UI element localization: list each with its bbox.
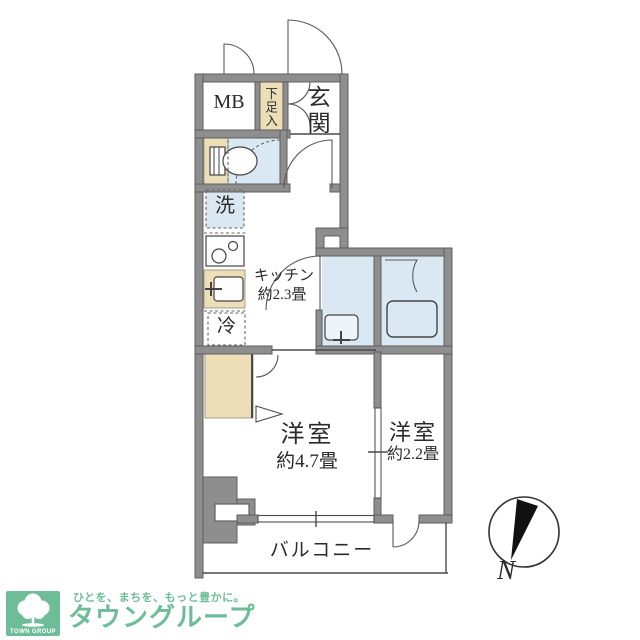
- sub-room-label: 洋室: [381, 421, 445, 444]
- entry-door-arc: [288, 20, 342, 74]
- wall-shoe-sep: [283, 82, 288, 130]
- stove-icon: [204, 233, 248, 266]
- floorplan-page: TOWN GROUP MB 下足入 玄関 洗 キッチン 約2.3畳 冷 洋室 約…: [0, 0, 640, 640]
- logo-box-label: TOWN GROUP: [10, 629, 56, 635]
- genkan-label: 玄関: [304, 85, 328, 137]
- wall-washroom-left: [316, 310, 322, 350]
- wall-toilet-bottom: [195, 184, 290, 192]
- balcony-label: バルコニー: [252, 541, 392, 561]
- compass-n-label: N: [486, 556, 526, 584]
- balcony-door-arc: [393, 519, 419, 547]
- washer-label: 洗: [206, 196, 244, 217]
- closet-door-mark: [256, 406, 282, 422]
- wall-bottom-a: [237, 515, 258, 523]
- sub-room-size-label: 約2.2畳: [377, 447, 449, 464]
- shoe-label: 下足入: [263, 87, 276, 128]
- wall-bath-divider: [374, 256, 381, 346]
- wall-kitchen-bottom: [195, 346, 272, 354]
- wall-wet-top: [316, 248, 452, 256]
- kitchen-size-label: 約2.3畳: [244, 288, 320, 304]
- vanity-icon: [325, 315, 358, 344]
- ps-box: [324, 236, 340, 248]
- wall-right: [444, 248, 452, 523]
- wall-mb-bottom: [195, 130, 290, 138]
- fridge-label: 冷: [208, 317, 245, 337]
- mb-label: MB: [203, 92, 255, 113]
- main-room-size-label: 約4.7畳: [252, 452, 362, 472]
- main-room-label: 洋室: [255, 423, 360, 448]
- wall-toilet-right: [280, 130, 287, 192]
- closet: [205, 354, 253, 418]
- wall-top: [195, 74, 348, 82]
- mb-door-arc: [224, 44, 254, 74]
- closet-door-arc: [256, 355, 278, 377]
- logo-box: TOWN GROUP: [6, 591, 60, 636]
- wall-bottom-b: [374, 515, 393, 523]
- wall-partition-top: [374, 352, 381, 408]
- hall-door-arc: [284, 140, 332, 188]
- wall-left: [195, 74, 203, 578]
- brand-logo-text: タウングループ: [68, 604, 255, 631]
- wall-bottom-c: [419, 515, 452, 523]
- wall-entry-right: [340, 74, 348, 236]
- wall-mb-sep: [255, 82, 260, 130]
- kitchen-label: キッチン: [246, 269, 322, 285]
